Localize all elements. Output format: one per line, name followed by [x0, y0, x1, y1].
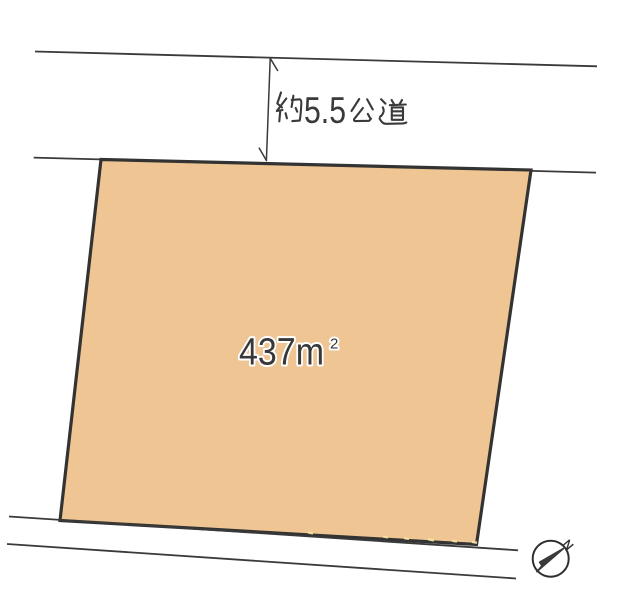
- svg-text:2: 2: [330, 336, 338, 353]
- svg-text:437m: 437m: [239, 332, 324, 374]
- svg-text:5.5: 5.5: [304, 90, 346, 131]
